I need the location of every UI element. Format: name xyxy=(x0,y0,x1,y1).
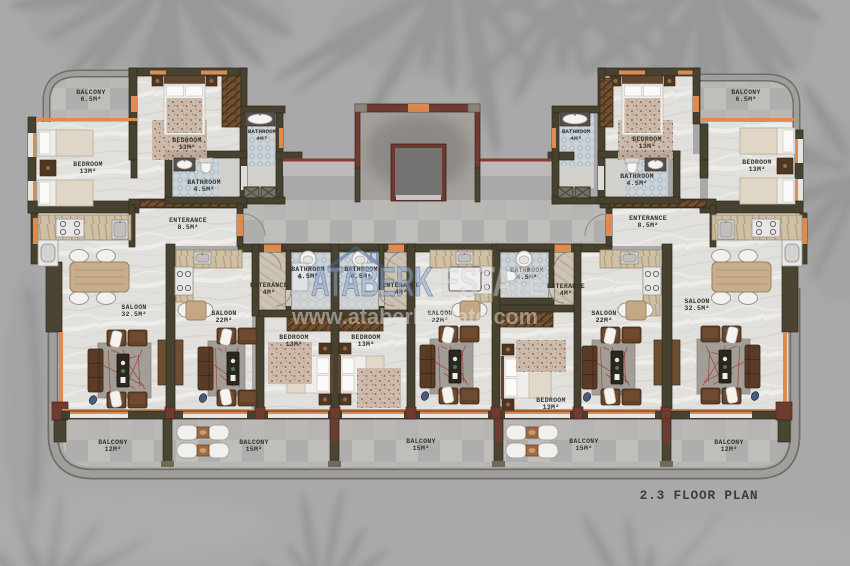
svg-text:BALCONY: BALCONY xyxy=(98,439,127,446)
svg-text:15M²: 15M² xyxy=(413,445,430,452)
svg-text:12M²: 12M² xyxy=(721,446,738,453)
svg-text:BALCONY: BALCONY xyxy=(406,438,435,445)
svg-text:13M²: 13M² xyxy=(639,143,656,150)
svg-text:BEDROOM: BEDROOM xyxy=(172,137,201,144)
svg-text:2.3 FLOOR PLAN: 2.3 FLOOR PLAN xyxy=(640,488,759,503)
svg-text:15M²: 15M² xyxy=(576,445,593,452)
svg-text:4M²: 4M² xyxy=(560,290,573,297)
svg-text:8.5M²: 8.5M² xyxy=(637,222,658,229)
svg-text:13M²: 13M² xyxy=(80,168,97,175)
svg-text:4M²: 4M² xyxy=(570,135,582,142)
svg-text:BATHROOM: BATHROOM xyxy=(248,128,277,135)
svg-text:15M²: 15M² xyxy=(246,446,263,453)
svg-text:ENTERANCE: ENTERANCE xyxy=(547,283,585,290)
svg-text:BALCONY: BALCONY xyxy=(569,438,598,445)
svg-text:13M²: 13M² xyxy=(543,404,560,411)
svg-text:22M²: 22M² xyxy=(216,317,233,324)
svg-text:22M²: 22M² xyxy=(596,317,613,324)
svg-text:ENTERANCE: ENTERANCE xyxy=(629,215,667,222)
svg-text:SALOON: SALOON xyxy=(591,310,616,317)
svg-text:32.5M²: 32.5M² xyxy=(121,311,146,318)
svg-text:BEDROOM: BEDROOM xyxy=(632,136,661,143)
svg-text:13M²: 13M² xyxy=(286,341,303,348)
svg-text:4.5M²: 4.5M² xyxy=(626,180,647,187)
svg-text:8.5M²: 8.5M² xyxy=(177,224,198,231)
svg-text:4M²: 4M² xyxy=(256,135,268,142)
svg-text:6.5M²: 6.5M² xyxy=(80,96,101,103)
svg-text:6.5M²: 6.5M² xyxy=(735,96,756,103)
svg-text:BEDROOM: BEDROOM xyxy=(279,334,308,341)
svg-text:BATHROOM: BATHROOM xyxy=(620,173,654,180)
svg-text:SALOON: SALOON xyxy=(684,298,709,305)
svg-text:BEDROOM: BEDROOM xyxy=(536,397,565,404)
svg-text:13M²: 13M² xyxy=(749,166,766,173)
svg-text:ESTATE: ESTATE xyxy=(441,258,546,305)
svg-text:13M²: 13M² xyxy=(179,144,196,151)
svg-text:BEDROOM: BEDROOM xyxy=(73,161,102,168)
svg-text:www.ataberkestate.com: www.ataberkestate.com xyxy=(291,304,538,329)
svg-text:4M²: 4M² xyxy=(263,289,276,296)
svg-text:4.5M²: 4.5M² xyxy=(193,186,214,193)
svg-text:32.5M²: 32.5M² xyxy=(684,305,709,312)
svg-text:ENTERANCE: ENTERANCE xyxy=(250,282,288,289)
svg-text:BALCONY: BALCONY xyxy=(714,439,743,446)
svg-text:BATHROOM: BATHROOM xyxy=(187,179,221,186)
svg-text:BALCONY: BALCONY xyxy=(76,89,105,96)
svg-text:BEDROOM: BEDROOM xyxy=(351,334,380,341)
svg-text:BALCONY: BALCONY xyxy=(731,89,760,96)
svg-text:BALCONY: BALCONY xyxy=(239,439,268,446)
svg-text:ENTERANCE: ENTERANCE xyxy=(169,217,207,224)
svg-text:13M²: 13M² xyxy=(358,341,375,348)
svg-text:ATABERK: ATABERK xyxy=(311,258,433,305)
svg-text:BEDROOM: BEDROOM xyxy=(742,159,771,166)
svg-text:BATHROOM: BATHROOM xyxy=(562,128,591,135)
svg-text:12M²: 12M² xyxy=(105,446,122,453)
svg-text:SALOON: SALOON xyxy=(211,310,236,317)
svg-text:SALOON: SALOON xyxy=(121,304,146,311)
